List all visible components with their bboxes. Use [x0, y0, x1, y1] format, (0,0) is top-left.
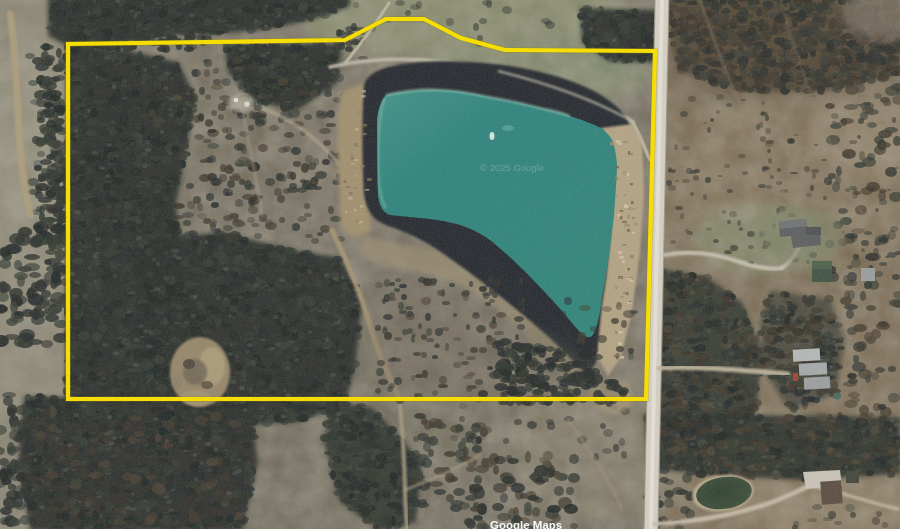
svg-text:Google Maps: Google Maps [490, 519, 562, 529]
svg-text:© 2025 Google: © 2025 Google [480, 162, 544, 173]
